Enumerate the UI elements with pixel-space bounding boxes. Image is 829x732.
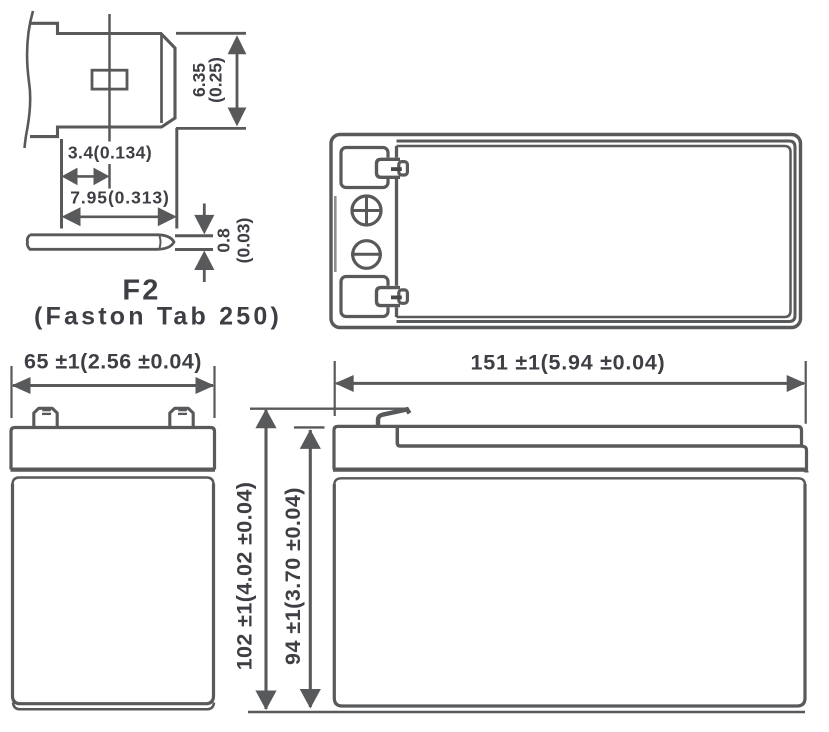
svg-text:151 ±1(5.94 ±0.04): 151 ±1(5.94 ±0.04) [471, 351, 666, 375]
svg-text:(Faston Tab 250): (Faston Tab 250) [34, 303, 282, 331]
svg-text:6.35(0.25): 6.35(0.25) [189, 57, 226, 103]
svg-text:3.4(0.134): 3.4(0.134) [68, 143, 152, 163]
svg-text:102 ±1(4.02 ±0.04): 102 ±1(4.02 ±0.04) [233, 482, 257, 671]
svg-text:94 ±1(3.70 ±0.04): 94 ±1(3.70 ±0.04) [281, 487, 305, 665]
svg-text:65 ±1(2.56 ±0.04): 65 ±1(2.56 ±0.04) [24, 350, 202, 374]
svg-text:7.95(0.313): 7.95(0.313) [70, 188, 169, 208]
